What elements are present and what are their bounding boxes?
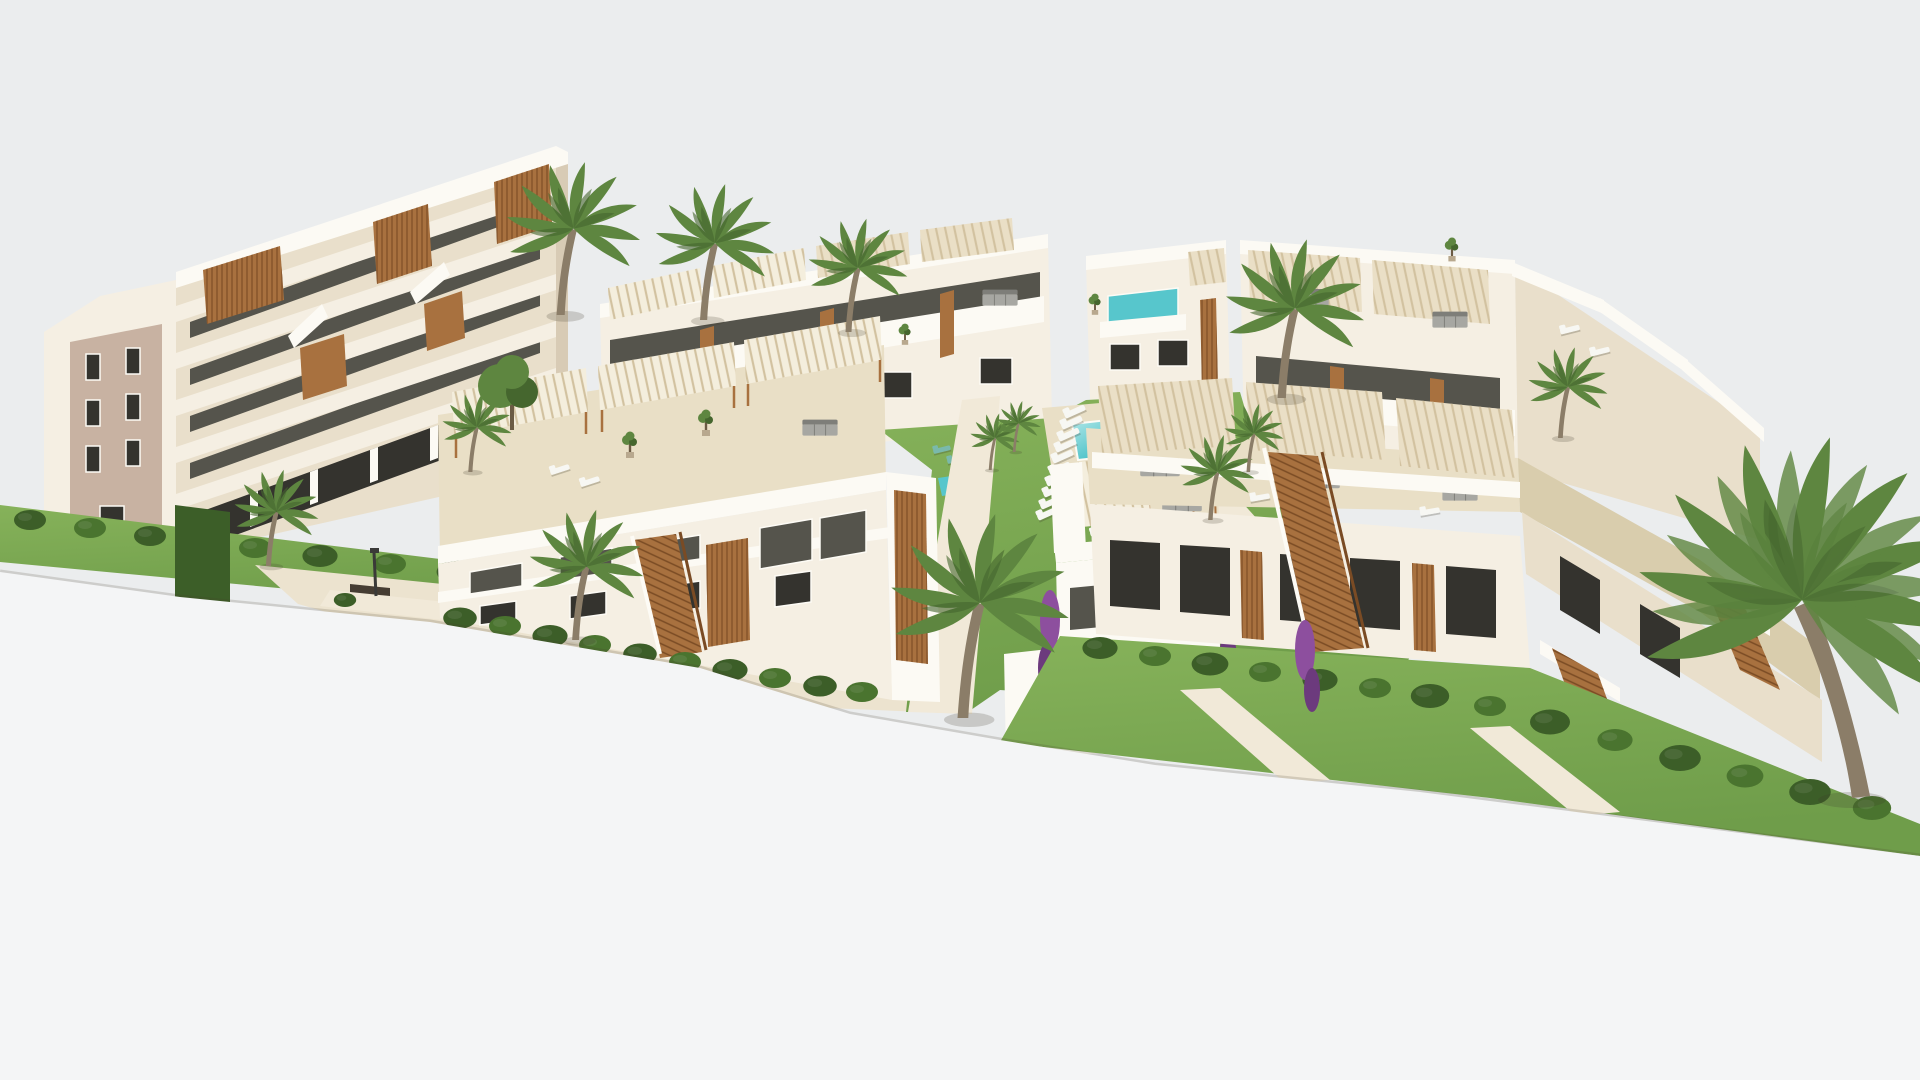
architectural-render: Aerial 3D architectural rendering of a w… <box>0 0 1920 1080</box>
render-canvas: Aerial 3D architectural rendering of a w… <box>0 0 1920 1080</box>
villa-center <box>1086 240 1230 400</box>
